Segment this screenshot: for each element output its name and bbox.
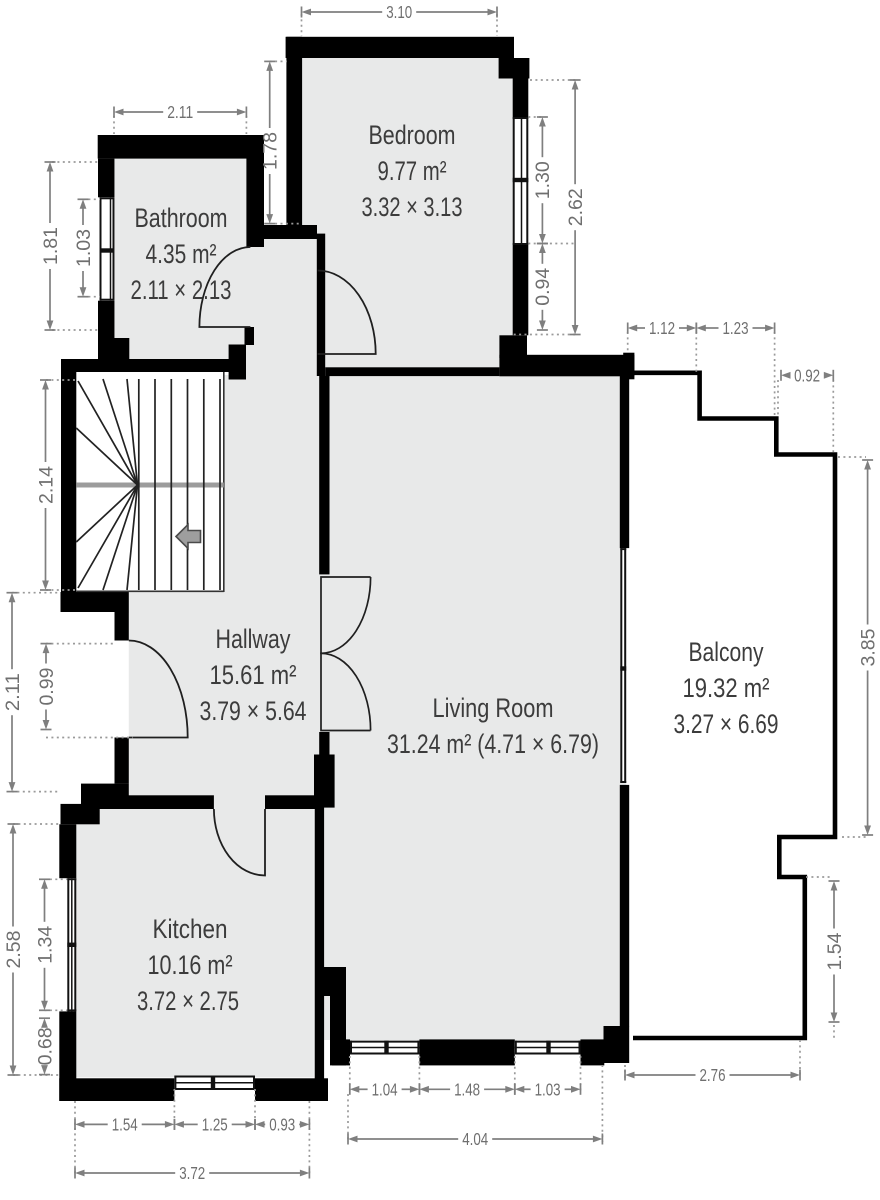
svg-text:1.54: 1.54 [825,932,846,970]
svg-text:Hallway: Hallway [216,624,291,654]
svg-text:0.92: 0.92 [794,366,820,386]
svg-text:10.16 m²: 10.16 m² [148,950,233,980]
svg-text:1.12: 1.12 [649,318,675,338]
svg-text:9.77 m²: 9.77 m² [378,156,447,186]
svg-text:3.72: 3.72 [179,1163,205,1183]
svg-text:0.94: 0.94 [533,267,554,305]
svg-text:Balcony: Balcony [689,637,764,667]
svg-text:1.03: 1.03 [535,1080,561,1100]
svg-text:0.99: 0.99 [37,668,58,706]
svg-text:2.62: 2.62 [566,188,587,226]
svg-text:1.30: 1.30 [533,161,554,199]
svg-text:0.93: 0.93 [269,1115,295,1135]
svg-text:2.58: 2.58 [4,931,25,969]
svg-text:15.61 m²: 15.61 m² [210,660,297,690]
svg-text:1.78: 1.78 [261,132,282,170]
svg-text:4.35 m²: 4.35 m² [146,239,217,269]
svg-text:3.27 × 6.69: 3.27 × 6.69 [674,709,779,739]
svg-text:Kitchen: Kitchen [153,914,228,944]
svg-text:1.48: 1.48 [454,1080,480,1100]
svg-text:2.11: 2.11 [3,673,24,711]
svg-text:2.76: 2.76 [700,1065,726,1085]
svg-text:Bathroom: Bathroom [135,203,228,233]
svg-text:1.25: 1.25 [202,1115,228,1135]
svg-text:3.85: 3.85 [858,629,879,667]
svg-text:1.04: 1.04 [372,1080,398,1100]
svg-text:4.04: 4.04 [462,1129,488,1149]
svg-text:2.11: 2.11 [167,102,193,122]
svg-text:31.24 m² (4.71 × 6.79): 31.24 m² (4.71 × 6.79) [387,729,599,759]
svg-text:Living Room: Living Room [433,693,554,723]
svg-text:1.23: 1.23 [723,318,749,338]
svg-text:3.72 × 2.75: 3.72 × 2.75 [137,986,239,1016]
svg-text:3.79 × 5.64: 3.79 × 5.64 [200,696,307,726]
svg-text:2.11 × 2.13: 2.11 × 2.13 [131,275,232,305]
svg-text:19.32 m²: 19.32 m² [683,673,770,703]
svg-text:0.68: 0.68 [35,1027,56,1065]
svg-text:1.34: 1.34 [35,925,56,963]
svg-text:1.54: 1.54 [112,1115,138,1135]
svg-text:3.32 × 3.13: 3.32 × 3.13 [362,192,463,222]
svg-text:Bedroom: Bedroom [369,120,456,150]
svg-text:1.81: 1.81 [41,227,62,265]
svg-text:3.10: 3.10 [386,2,412,22]
svg-text:2.14: 2.14 [36,466,57,504]
svg-text:1.03: 1.03 [74,229,95,267]
